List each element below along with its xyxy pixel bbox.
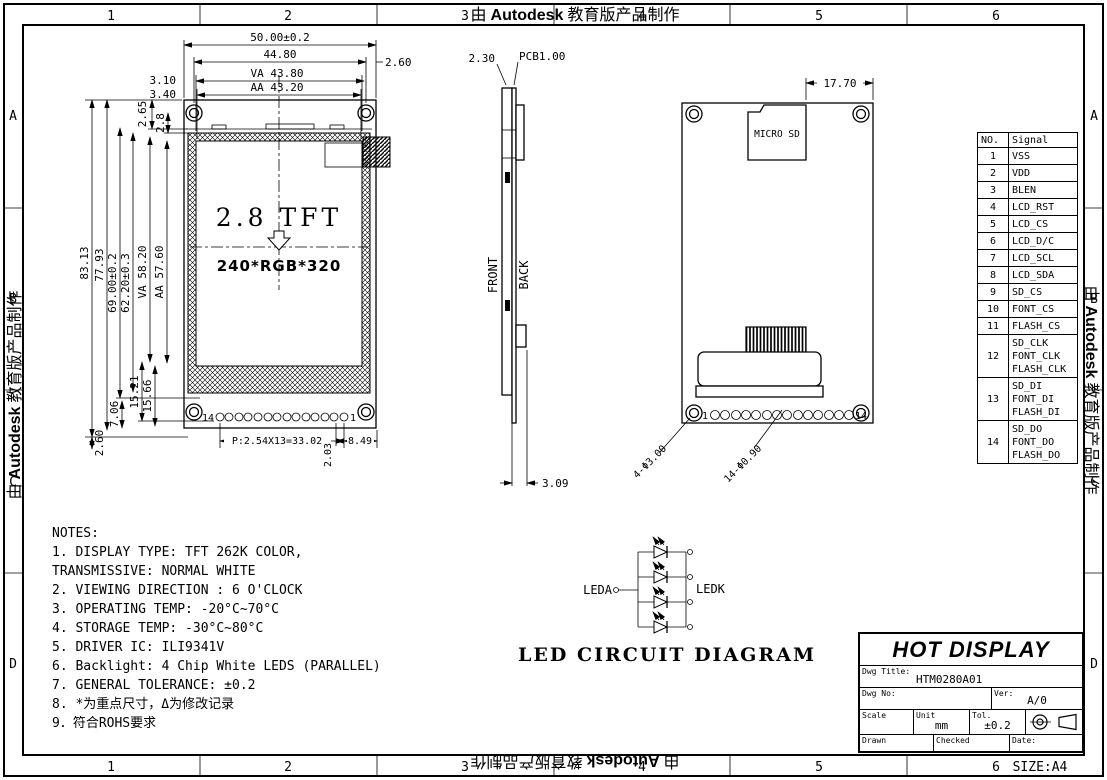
side-view: 2.30 PCB1.00 FRONT BACK 3.09 (469, 50, 569, 490)
row-label-a-right: A (1090, 109, 1098, 124)
watermark-prefix: 由 (471, 7, 487, 24)
dim-bottom-4: 2.60 (93, 430, 106, 457)
pin-no: 3 (978, 182, 1009, 199)
dim-va-width: VA 43.80 (251, 67, 304, 80)
table-row: 9SD_CS (978, 284, 1078, 301)
dwg-no-label: Dwg No: (862, 689, 896, 698)
col-label-2-bottom: 2 (284, 760, 292, 775)
table-row: 3BLEN (978, 182, 1078, 199)
holes-callout: 4-Φ3.00 (631, 443, 669, 481)
pin-no: 11 (978, 318, 1009, 335)
table-row: 7LCD_SCL (978, 250, 1078, 267)
col-label-1-top: 1 (107, 9, 115, 24)
checked-cell: Checked (934, 735, 1010, 753)
watermark-brand: Autodesk (7, 407, 24, 480)
date-cell: Date: (1010, 735, 1082, 753)
dim-pin-pitch: P:2.54X13=33.02 (232, 436, 322, 447)
front-left-dimensions: 83.13 77.93 69.00±0.2 62.20±0.3 VA 58.20… (78, 100, 167, 456)
note-item-4: 4. STORAGE TEMP: -30°C~80°C (52, 619, 472, 638)
pin-signal: LCD_D/C (1009, 233, 1078, 250)
note-item-7: 7. GENERAL TOLERANCE: ±0.2 (52, 676, 472, 695)
pin-no: 12 (978, 335, 1009, 378)
led-icon (653, 587, 667, 608)
dim-bottom-2: 15.66 (141, 379, 154, 412)
dim-height-2: 77.93 (93, 248, 106, 281)
watermark-brand: Autodesk (587, 752, 660, 769)
note-item-9: 9．符合ROHS要求 (52, 714, 472, 733)
watermark-left: 由Autodesk教育版产品制作 (1, 291, 25, 500)
back-pin-first-label: 1 (702, 411, 708, 422)
col-label-3-bottom: 3 (461, 760, 469, 775)
pin-no: 13 (978, 378, 1009, 421)
pin-no: 1 (978, 148, 1009, 165)
dwg-title-value: HTM0280A01 (916, 673, 982, 686)
dim-va-offset: 3.10 (150, 74, 177, 87)
pin-signal: FLASH_CS (1009, 318, 1078, 335)
led-icon (653, 537, 667, 558)
projection-symbol-cell (1026, 710, 1082, 734)
pin-signal: BLEN (1009, 182, 1078, 199)
scale-cell: Scale (860, 710, 914, 734)
pin-no: 9 (978, 284, 1009, 301)
drawn-cell: Drawn (860, 735, 934, 753)
micro-sd-label: MICRO SD (754, 129, 800, 140)
version-label: Ver: (994, 689, 1013, 698)
pin-no: 10 (978, 301, 1009, 318)
pin-signal: LCD_CS (1009, 216, 1078, 233)
dim-height-4: 62.20±0.3 (119, 253, 132, 313)
dim-top-margin-2: 2.8 (154, 113, 167, 133)
col-header-signal: Signal (1009, 133, 1078, 148)
tolerance-label: Tol. (972, 711, 991, 720)
unit-cell: Unit mm (914, 710, 970, 734)
fpc-body (698, 352, 821, 386)
display-size-label: 2.8 TFT (216, 203, 342, 232)
front-side-label: FRONT (486, 257, 500, 293)
table-row: 8LCD_SDA (978, 267, 1078, 284)
dim-right-margin: 2.60 (385, 56, 412, 69)
watermark-top: 由Autodesk教育版产品制作 (471, 1, 680, 25)
watermark-brand: Autodesk (491, 7, 564, 24)
row-label-d-left: D (9, 657, 17, 672)
title-block-company-row: HOT DISPLAY (860, 634, 1082, 666)
col-label-2-top: 2 (284, 9, 292, 24)
tolerance-cell: Tol. ±0.2 (970, 710, 1026, 734)
pin-signal: SD_DI FONT_DI FLASH_DI (1009, 378, 1078, 421)
sheet-size-label: SIZE:A4 (1013, 760, 1068, 775)
pin-signal: VDD (1009, 165, 1078, 182)
table-row: 14SD_DO FONT_DO FLASH_DO (978, 421, 1078, 464)
pin-no: 4 (978, 199, 1009, 216)
version-cell: Ver: A/0 (992, 688, 1082, 709)
dim-top-margin-1: 2.65 (136, 101, 149, 128)
dim-va-height: VA 58.20 (136, 246, 149, 299)
notes: NOTES: 1. DISPLAY TYPE: TFT 262K COLOR, … (52, 524, 472, 733)
table-row: 1VSS (978, 148, 1078, 165)
watermark-prefix: 由 (1082, 286, 1099, 302)
fpc-base (696, 386, 823, 397)
led-cathode-label: LEDK (696, 582, 726, 596)
note-item-5: 5. DRIVER IC: ILI9341V (52, 638, 472, 657)
title-block: HOT DISPLAY Dwg Title: HTM0280A01 Dwg No… (858, 632, 1084, 753)
row-label-d-right: D (1090, 657, 1098, 672)
pin-no: 14 (978, 421, 1009, 464)
col-label-5-top: 5 (815, 9, 823, 24)
watermark-prefix: 由 (7, 483, 24, 499)
checked-label: Checked (936, 736, 970, 745)
watermark-right: 由Autodesk教育版产品制作 (1081, 286, 1105, 495)
watermark-brand: Autodesk (1082, 306, 1099, 379)
dim-hole-span-width: 44.80 (263, 48, 296, 61)
unit-label: Unit (916, 711, 935, 720)
watermark-suffix: 教育版产品制作 (1082, 382, 1099, 494)
pin-signal: SD_DO FONT_DO FLASH_DO (1009, 421, 1078, 464)
note-item-1: 1. DISPLAY TYPE: TFT 262K COLOR, TRANSMI… (52, 543, 472, 581)
dim-overall-height: 83.13 (78, 246, 91, 279)
front-view: 14 1 2.8 TFT 240*RGB*320 50.00±0.2 44.80… (78, 31, 412, 467)
col-label-1-bottom: 1 (107, 760, 115, 775)
dim-glass-thickness: 2.30 (469, 52, 496, 65)
dim-overall-width: 50.00±0.2 (250, 31, 310, 44)
side-tab-1 (505, 172, 510, 183)
projection-symbol-icon (1029, 712, 1079, 732)
scale-label: Scale (862, 711, 886, 720)
lcd-corner-mark (363, 137, 390, 167)
title-block-scale-row: Scale Unit mm Tol. ±0.2 (860, 710, 1082, 735)
tolerance-value: ±0.2 (984, 719, 1011, 732)
col-label-6-top: 6 (992, 9, 1000, 24)
watermark-suffix: 教育版产品制作 (7, 291, 24, 403)
pins-callout: 14-Φ0.90 (722, 443, 764, 485)
pin-no: 6 (978, 233, 1009, 250)
fpc-comb (746, 327, 806, 353)
pin-signal: SD_CS (1009, 284, 1078, 301)
note-item-8: 8. *为重点尺寸，Δ为修改记录 (52, 695, 472, 714)
dim-bottom-1: 15.21 (128, 375, 141, 408)
resolution-label: 240*RGB*320 (217, 257, 342, 275)
dim-height-3: 69.00±0.2 (106, 253, 119, 313)
date-label: Date: (1012, 736, 1036, 745)
company-name: HOT DISPLAY (860, 634, 1082, 665)
back-side-label: BACK (517, 260, 531, 290)
table-row: 5LCD_CS (978, 216, 1078, 233)
watermark-prefix: 由 (663, 752, 679, 769)
side-fpc-connector (516, 325, 526, 347)
signal-table: NO. Signal 1VSS 2VDD 3BLEN 4LCD_RST 5LCD… (977, 132, 1078, 464)
table-row: 13SD_DI FONT_DI FLASH_DI (978, 378, 1078, 421)
note-item-2: 2. VIEWING DIRECTION : 6 O'CLOCK (52, 581, 472, 600)
col-header-no: NO. (978, 133, 1009, 148)
pin-signal: SD_CLK FONT_CLK FLASH_CLK (1009, 335, 1078, 378)
watermark-bottom: 由Autodesk教育版产品制作 (471, 751, 680, 775)
front-pin-first-label: 1 (350, 413, 356, 424)
dim-fpc-offset: 3.09 (542, 477, 569, 490)
dim-bottom-3: 7.06 (108, 401, 121, 428)
dim-sd-offset: 17.70 (823, 77, 856, 90)
dwg-no-cell: Dwg No: (860, 688, 992, 709)
pin-signal: LCD_SDA (1009, 267, 1078, 284)
drawn-label: Drawn (862, 736, 886, 745)
pin-signal: LCD_RST (1009, 199, 1078, 216)
table-row: 12SD_CLK FONT_CLK FLASH_CLK (978, 335, 1078, 378)
back-view: MICRO SD 1 14 17.70 4-Φ3.00 14-Φ0.90 (631, 76, 873, 485)
back-pin-last-label: 14 (855, 411, 867, 422)
unit-value: mm (935, 719, 948, 732)
dim-pin-offset: 2.03 (323, 443, 334, 467)
front-bottom-dimensions: P:2.54X13=33.02 2.03 8.49 (220, 434, 377, 467)
table-row: 4LCD_RST (978, 199, 1078, 216)
dim-pin-margin: 8.49 (348, 436, 372, 447)
note-item-6: 6. Backlight: 4 Chip White LEDS (PARALLE… (52, 657, 472, 676)
version-value: A/0 (1027, 694, 1047, 707)
pin-no: 5 (978, 216, 1009, 233)
pin-signal: FONT_CS (1009, 301, 1078, 318)
dim-aa-width: AA 43.20 (251, 81, 304, 94)
led-branches (638, 550, 693, 630)
dwg-title-label: Dwg Title: (862, 667, 910, 676)
pin-no: 8 (978, 267, 1009, 284)
col-label-5-bottom: 5 (815, 760, 823, 775)
pin-no: 2 (978, 165, 1009, 182)
title-block-dwg-title-row: Dwg Title: HTM0280A01 (860, 666, 1082, 688)
row-label-a-left: A (9, 109, 17, 124)
dim-aa-height: AA 57.60 (153, 246, 166, 299)
col-label-6-bottom: 6 (992, 760, 1000, 775)
side-tab-2 (505, 300, 510, 311)
table-header-row: NO. Signal (978, 133, 1078, 148)
note-item-3: 3. OPERATING TEMP: -20°C~70°C (52, 600, 472, 619)
dim-pcb-thickness: PCB1.00 (519, 50, 565, 63)
led-circuit-title: LED CIRCUIT DIAGRAM (518, 644, 816, 666)
led-icon (653, 612, 667, 633)
table-row: 6LCD_D/C (978, 233, 1078, 250)
table-row: 11FLASH_CS (978, 318, 1078, 335)
pin-signal: LCD_SCL (1009, 250, 1078, 267)
led-anode-label: LEDA (583, 583, 613, 597)
col-label-3-top: 3 (461, 9, 469, 24)
title-block-dwg-no-row: Dwg No: Ver: A/0 (860, 688, 1082, 710)
front-pin-last-label: 14 (202, 413, 214, 424)
watermark-suffix: 教育版产品制作 (567, 7, 679, 24)
led-circuit-diagram: LEDA LEDK LED CIRCUIT DIAGRAM (518, 537, 816, 666)
pin-no: 7 (978, 250, 1009, 267)
table-row: 10FONT_CS (978, 301, 1078, 318)
pin-signal: VSS (1009, 148, 1078, 165)
dim-aa-offset: 3.40 (150, 88, 177, 101)
watermark-suffix: 教育版产品制作 (471, 752, 583, 769)
title-block-signoff-row: Drawn Checked Date: (860, 735, 1082, 753)
notes-title: NOTES: (52, 524, 472, 543)
table-row: 2VDD (978, 165, 1078, 182)
led-icon (653, 562, 667, 583)
